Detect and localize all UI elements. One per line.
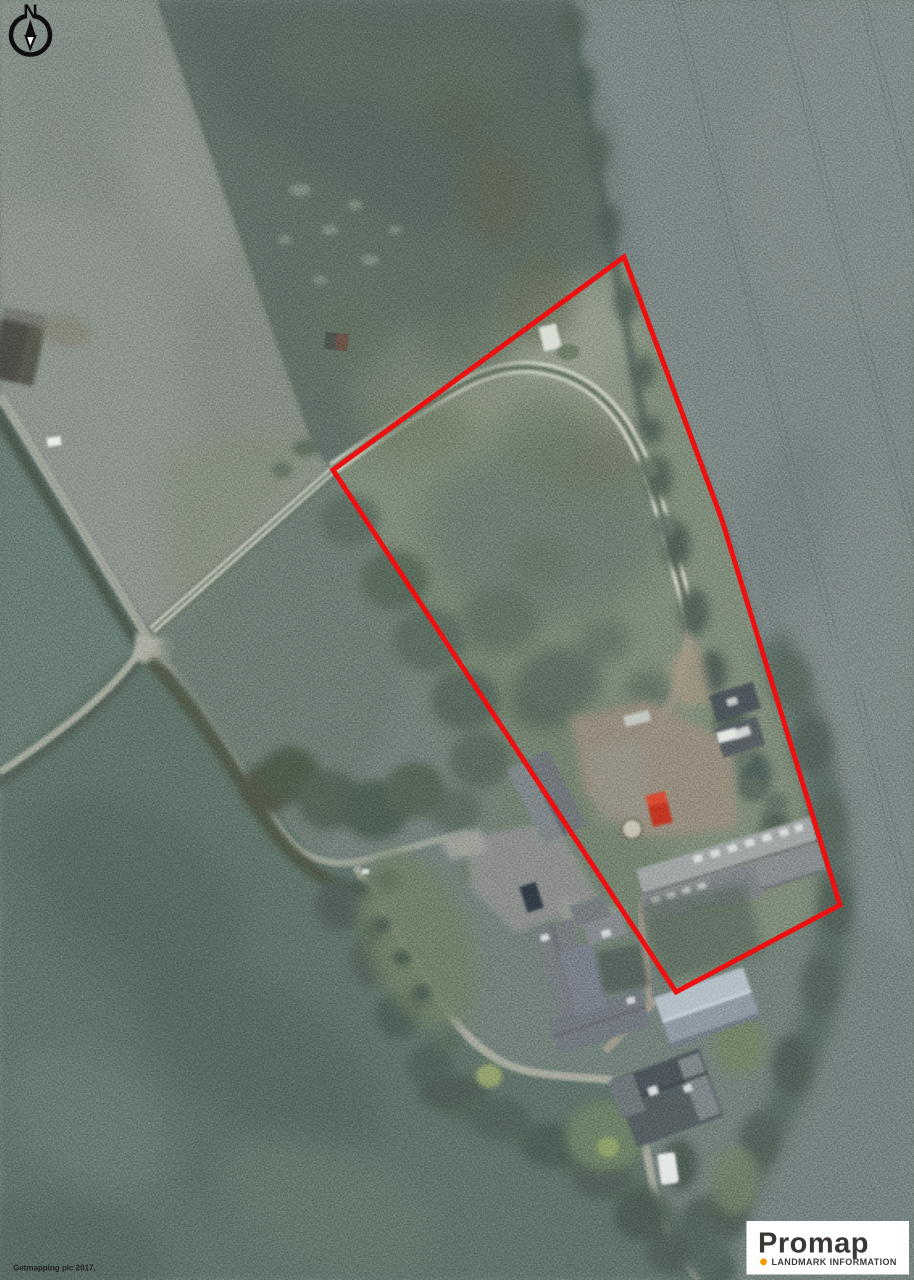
svg-text:Getmapping plc 2017.: Getmapping plc 2017. (13, 1264, 96, 1273)
svg-text:Promap: Promap (758, 1228, 869, 1260)
svg-text:LANDMARK INFORMATION: LANDMARK INFORMATION (772, 1257, 897, 1267)
